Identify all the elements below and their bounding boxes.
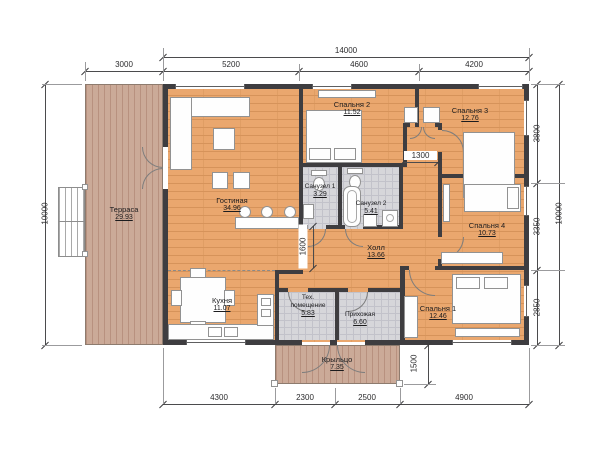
terrace-stairs (58, 187, 85, 257)
room-label-terrace: Терраса 29.93 (94, 205, 154, 223)
room-label-entry: Прихожая 6.60 (330, 311, 390, 328)
room-label-tech: Тех. помещение 5.83 (284, 294, 332, 319)
dim-bottom-2: 2500 (337, 393, 397, 402)
room-name: Прихожая (330, 311, 390, 319)
room-area: 11.52 (322, 109, 382, 118)
pillow (309, 148, 331, 160)
dim-width-total: 14000 (316, 46, 376, 55)
terrace-post (82, 251, 88, 257)
extension-line (400, 388, 401, 404)
room-area: 7.35 (307, 364, 367, 373)
pillow (456, 277, 480, 289)
tv-panel (443, 184, 450, 222)
room-label-bedroom1: Спальня 1 12.46 (408, 304, 468, 322)
room-name: Холл (346, 243, 406, 252)
room-label-bathroom1: Санузел 1 3.29 (298, 183, 342, 200)
room-name: Крыльцо (307, 355, 367, 364)
dimension-line (85, 71, 529, 72)
extension-line (163, 48, 164, 81)
extension-line (42, 84, 82, 85)
wall (308, 288, 348, 292)
kitchen-boundary-dashed-line (168, 270, 275, 271)
pillow (334, 148, 356, 160)
kitchen-sink (208, 327, 222, 337)
stove-burners (261, 298, 271, 306)
armchair (233, 172, 250, 189)
room-name: Гостиная (202, 196, 262, 205)
room-area: 29.93 (94, 214, 154, 223)
room-name: Спальня 4 (457, 221, 517, 230)
extension-line (404, 384, 436, 385)
window (524, 186, 529, 216)
room-name: Кухня (192, 296, 252, 305)
room-name: Терраса (94, 205, 154, 214)
room-name: Спальня 3 (440, 106, 500, 115)
room-name: Санузел 2 (349, 200, 393, 208)
extension-line (42, 345, 82, 346)
window (312, 84, 352, 89)
room-label-bedroom2: Спальня 2 11.52 (322, 100, 382, 118)
extension-line (531, 345, 565, 346)
terrace-post (82, 184, 88, 190)
room-name: Санузел 1 (298, 183, 342, 191)
wall (438, 152, 442, 237)
bar-stool (284, 206, 296, 218)
room-area: 12.46 (408, 313, 468, 322)
room-area: 34.96 (202, 205, 262, 214)
room-label-living: Гостиная 34.96 (202, 196, 262, 214)
extension-line (531, 183, 565, 184)
wall (275, 270, 279, 340)
wall (163, 84, 168, 345)
room-area: 6.60 (330, 319, 390, 328)
kitchen-sink (224, 327, 238, 337)
dim-corridor: 1300 (404, 151, 437, 160)
wardrobe (404, 107, 418, 123)
room-label-bathroom2: Санузел 2 5.41 (349, 200, 393, 217)
room-label-kitchen: Кухня 11.07 (192, 296, 252, 314)
dim-bottom-3: 4900 (434, 393, 494, 402)
coffee-table (213, 128, 235, 150)
dimension-line (428, 345, 429, 384)
room-label-hall: Холл 13.66 (346, 243, 406, 261)
extension-line (163, 348, 164, 404)
room-name: Тех. помещение (284, 294, 332, 310)
dresser (455, 328, 520, 337)
room-area: 12.76 (440, 115, 500, 124)
room-label-bedroom4: Спальня 4 10.73 (457, 221, 517, 239)
extension-line (335, 388, 336, 404)
floor-plan: Терраса 29.93 Гостиная 34.96 Кухня 11.07… (0, 0, 600, 463)
extension-line (531, 270, 565, 271)
window (524, 285, 529, 317)
extension-line (529, 48, 530, 81)
dim-right-0: 3800 (533, 104, 542, 164)
armchair (212, 172, 228, 189)
room-area: 3.29 (298, 191, 342, 200)
dim-right-2: 2850 (533, 278, 542, 338)
window (524, 100, 529, 136)
room-area: 5.83 (284, 310, 332, 319)
room-label-porch: Крыльцо 7.35 (307, 355, 367, 373)
wall (303, 163, 403, 167)
dim-bottom-0: 4300 (189, 393, 249, 402)
porch-post (271, 380, 278, 387)
sofa (170, 97, 192, 170)
toilet-tank (311, 170, 327, 176)
terrace-door-opening (163, 147, 168, 189)
wall (326, 225, 345, 229)
dim-left-total: 10000 (41, 184, 50, 244)
pillow (507, 187, 519, 209)
washbasin (303, 204, 314, 219)
dim-right-total: 10000 (555, 184, 564, 244)
dim-opening: 1600 (299, 225, 308, 269)
room-area: 13.66 (346, 252, 406, 261)
stairs-rail-line (58, 221, 85, 222)
desk (441, 252, 503, 264)
window (186, 340, 246, 345)
dimension-line (403, 162, 438, 163)
extension-line (419, 64, 420, 81)
dim-top-3: 4200 (444, 60, 504, 69)
dim-top-0: 3000 (94, 60, 154, 69)
window (478, 84, 523, 89)
wall (275, 270, 303, 274)
wardrobe (423, 107, 440, 123)
room-label-bedroom3: Спальня 3 12.76 (440, 106, 500, 124)
extension-line (531, 84, 565, 85)
extension-line (85, 62, 86, 81)
stove-burners (261, 309, 271, 317)
dimension-line (163, 57, 529, 58)
dim-bottom-1: 2300 (275, 393, 335, 402)
room-area: 11.07 (192, 305, 252, 314)
room-name: Спальня 1 (408, 304, 468, 313)
dimension-line (313, 226, 314, 268)
wall (368, 288, 400, 292)
wall (399, 167, 403, 229)
chair (171, 290, 182, 306)
wall (435, 266, 524, 270)
window (452, 340, 512, 345)
room-area: 10.73 (457, 230, 517, 239)
dim-right-1: 3350 (533, 197, 542, 257)
toilet-tank (347, 168, 363, 174)
porch-post (396, 380, 403, 387)
extension-line (529, 348, 530, 404)
window (175, 84, 245, 89)
pillow (484, 277, 508, 289)
dim-top-2: 4600 (329, 60, 389, 69)
room-area: 5.41 (349, 208, 393, 217)
extension-line (299, 64, 300, 81)
bar-counter (235, 217, 299, 229)
dim-porch-depth: 1500 (410, 342, 419, 386)
extension-line (275, 388, 276, 404)
dimension-line (163, 404, 529, 405)
room-name: Спальня 2 (322, 100, 382, 109)
dim-top-1: 5200 (201, 60, 261, 69)
bar-stool (261, 206, 273, 218)
dresser (318, 90, 376, 98)
wall (330, 340, 337, 345)
